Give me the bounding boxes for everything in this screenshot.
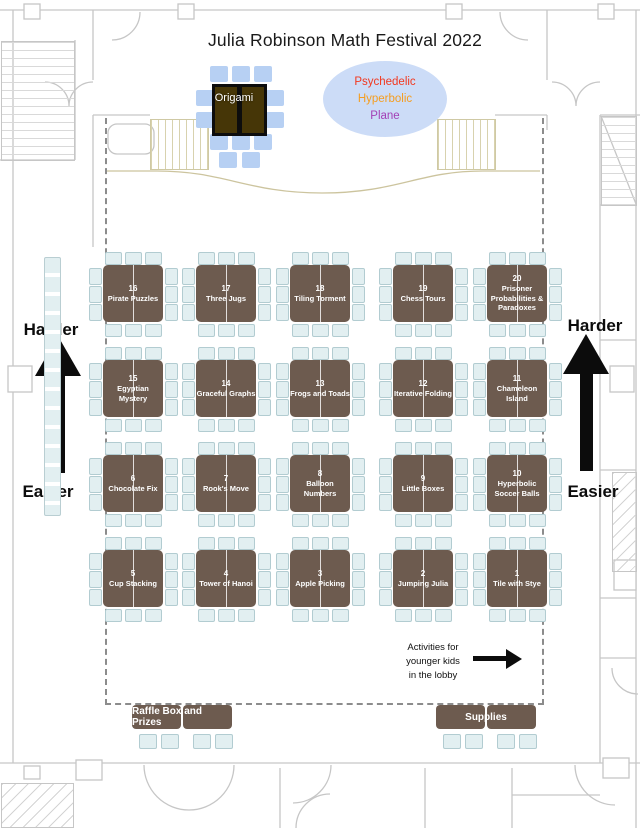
chair (395, 609, 412, 622)
activity-table-19: 19 Chess Tours (379, 252, 467, 336)
table-top: 16 Pirate Puzzles (103, 265, 163, 322)
chair (276, 571, 289, 588)
chair (258, 571, 271, 588)
table-top: 9 Little Boxes (393, 455, 453, 512)
chair (182, 381, 195, 398)
table-number: 2 (393, 569, 453, 579)
chair (276, 286, 289, 303)
table-top: 2 Jumping Julia (393, 550, 453, 607)
chair (332, 347, 349, 360)
chair (258, 286, 271, 303)
table-top: 6 Chocolate Fix (103, 455, 163, 512)
table-top: 18 Tiling Torment (290, 265, 350, 322)
chair (312, 514, 329, 527)
chair (312, 347, 329, 360)
chair (89, 286, 102, 303)
table-number: 19 (393, 284, 453, 294)
chair (379, 476, 392, 493)
chair (165, 304, 178, 321)
activity-table-14: 14 Graceful Graphs (182, 347, 270, 431)
chair (292, 442, 309, 455)
chair (232, 66, 250, 82)
chair (105, 419, 122, 432)
chair (332, 537, 349, 550)
chair (254, 66, 272, 82)
table-number: 10 (487, 469, 547, 479)
chair (145, 609, 162, 622)
activity-table-5: 5 Cup Stacking (89, 537, 177, 621)
chair (489, 514, 506, 527)
chair (292, 347, 309, 360)
chair (509, 609, 526, 622)
chair (489, 442, 506, 455)
activity-table-17: 17 Three Jugs (182, 252, 270, 336)
chair (529, 419, 546, 432)
chair (105, 252, 122, 265)
arrow-head (563, 334, 609, 374)
chair (125, 537, 142, 550)
chair (254, 134, 272, 150)
table-top: 7 Rook's Move (196, 455, 256, 512)
chair (352, 553, 365, 570)
chair (165, 399, 178, 416)
chair (258, 589, 271, 606)
table-top: 12 Iterative Folding (393, 360, 453, 417)
chair (352, 381, 365, 398)
chair (379, 268, 392, 285)
chair (292, 514, 309, 527)
chair (89, 381, 102, 398)
chair (145, 514, 162, 527)
chair (352, 458, 365, 475)
chair (218, 537, 235, 550)
chair (125, 252, 142, 265)
chair (276, 553, 289, 570)
chair (455, 381, 468, 398)
chair (509, 324, 526, 337)
chair (165, 458, 178, 475)
table-number: 3 (290, 569, 350, 579)
chair (238, 252, 255, 265)
table-top: 10 Hyperbolic Soccer Balls (487, 455, 547, 512)
chair (489, 347, 506, 360)
chair (292, 252, 309, 265)
chair (89, 571, 102, 588)
chair (455, 268, 468, 285)
chair (218, 442, 235, 455)
activity-table-10: 10 Hyperbolic Soccer Balls (473, 442, 561, 526)
table-number: 9 (393, 474, 453, 484)
arrow-shaft (473, 656, 506, 661)
table-activity-name: Pirate Puzzles (103, 294, 163, 303)
chair (332, 609, 349, 622)
chair (219, 152, 237, 168)
chair (165, 589, 178, 606)
chair (165, 476, 178, 493)
chair (218, 609, 235, 622)
chair (89, 268, 102, 285)
chair (489, 324, 506, 337)
chair (89, 553, 102, 570)
lobby-note-line: younger kids (397, 655, 469, 669)
chair (332, 252, 349, 265)
chair (529, 442, 546, 455)
chair (89, 304, 102, 321)
chair (549, 381, 562, 398)
chair (529, 514, 546, 527)
supplies-table-label: Supplies (436, 705, 536, 729)
chair (276, 476, 289, 493)
chair (165, 553, 178, 570)
chair (276, 381, 289, 398)
chair (549, 286, 562, 303)
chair (455, 304, 468, 321)
floor-plan: Julia Robinson Math Festival 2022 Origam… (0, 0, 640, 828)
chair (182, 268, 195, 285)
table-activity-name: Balloon Numbers (290, 479, 350, 498)
chair (529, 324, 546, 337)
chair (258, 476, 271, 493)
supplies-table: Supplies (436, 705, 536, 729)
chair (232, 134, 250, 150)
chair (182, 571, 195, 588)
chair (276, 494, 289, 511)
table-activity-name: Jumping Julia (393, 579, 453, 588)
chair (125, 442, 142, 455)
chair (105, 514, 122, 527)
activity-table-6: 6 Chocolate Fix (89, 442, 177, 526)
chair (258, 458, 271, 475)
table-activity-name: Tile with Stye (487, 579, 547, 588)
chair (258, 363, 271, 380)
chair (165, 363, 178, 380)
chair (182, 476, 195, 493)
chair (379, 494, 392, 511)
chair (509, 537, 526, 550)
table-top: 5 Cup Stacking (103, 550, 163, 607)
chair (198, 442, 215, 455)
chair (455, 494, 468, 511)
chair (276, 304, 289, 321)
chair (182, 363, 195, 380)
chair (161, 734, 179, 749)
chair (529, 347, 546, 360)
activity-table-18: 18 Tiling Torment (276, 252, 364, 336)
page-title: Julia Robinson Math Festival 2022 (105, 30, 585, 51)
table-activity-name: Rook's Move (196, 484, 256, 493)
table-top: 8 Balloon Numbers (290, 455, 350, 512)
lobby-note: Activities for younger kids in the lobby (397, 641, 469, 683)
chair (125, 324, 142, 337)
chair (549, 304, 562, 321)
chair (415, 252, 432, 265)
chair (89, 458, 102, 475)
chair (276, 458, 289, 475)
chair (549, 458, 562, 475)
chair (529, 537, 546, 550)
chair (276, 399, 289, 416)
chair (312, 442, 329, 455)
chair (509, 514, 526, 527)
table-activity-name: Chess Tours (393, 294, 453, 303)
chair (352, 286, 365, 303)
chair (473, 363, 486, 380)
chair (473, 476, 486, 493)
activity-table-2: 2 Jumping Julia (379, 537, 467, 621)
chair (455, 399, 468, 416)
chair (198, 514, 215, 527)
sign-line-2: Hyperbolic (358, 91, 412, 108)
chair (549, 553, 562, 570)
chair (238, 514, 255, 527)
chair (332, 419, 349, 432)
origami-label: Origami (201, 92, 267, 104)
activity-table-9: 9 Little Boxes (379, 442, 467, 526)
activity-table-13: 13 Frogs and Toads (276, 347, 364, 431)
chair (182, 286, 195, 303)
sign-line-1: Psychedelic (354, 74, 415, 91)
chair (292, 324, 309, 337)
chair (352, 589, 365, 606)
table-number: 14 (196, 379, 256, 389)
chair (238, 347, 255, 360)
chair (415, 419, 432, 432)
chair (105, 324, 122, 337)
chair (529, 609, 546, 622)
chair (89, 589, 102, 606)
chair (258, 381, 271, 398)
table-number: 11 (487, 374, 547, 384)
chair (105, 347, 122, 360)
chair (473, 571, 486, 588)
chair (182, 304, 195, 321)
chair (473, 286, 486, 303)
chair (352, 399, 365, 416)
chair (549, 571, 562, 588)
chair (276, 363, 289, 380)
chair (266, 112, 284, 128)
table-activity-name: Tower of Hanoi (196, 579, 256, 588)
table-number: 18 (290, 284, 350, 294)
chair (145, 347, 162, 360)
chair (218, 347, 235, 360)
chair (332, 514, 349, 527)
activity-table-11: 11 Chameleon Island (473, 347, 561, 431)
chair (312, 609, 329, 622)
chair (198, 347, 215, 360)
table-top: 19 Chess Tours (393, 265, 453, 322)
stairs-top-left (1, 41, 75, 161)
chair (198, 324, 215, 337)
chair (105, 537, 122, 550)
chair (258, 304, 271, 321)
chair (215, 734, 233, 749)
table-activity-name: Chameleon Island (487, 384, 547, 403)
chair (238, 442, 255, 455)
chair (182, 553, 195, 570)
chair (182, 494, 195, 511)
activity-table-20: 20 Prisoner Probabilities & Paradoxes (473, 252, 561, 336)
chair (238, 324, 255, 337)
chair (455, 363, 468, 380)
chair (218, 252, 235, 265)
chair (145, 442, 162, 455)
chair (415, 609, 432, 622)
chair (165, 494, 178, 511)
chair (465, 734, 483, 749)
chair (218, 419, 235, 432)
chair (139, 734, 157, 749)
activity-table-12: 12 Iterative Folding (379, 347, 467, 431)
chair (182, 399, 195, 416)
table-number: 13 (290, 379, 350, 389)
chair (312, 324, 329, 337)
chair (473, 458, 486, 475)
table-activity-name: Cup Stacking (103, 579, 163, 588)
chair (165, 381, 178, 398)
table-top: 4 Tower of Hanoi (196, 550, 256, 607)
chair (473, 553, 486, 570)
activity-table-1: 1 Tile with Stye (473, 537, 561, 621)
chair (519, 734, 537, 749)
table-activity-name: Frogs and Toads (290, 389, 350, 398)
activity-table-7: 7 Rook's Move (182, 442, 270, 526)
chair (549, 363, 562, 380)
chair (489, 419, 506, 432)
chair (509, 347, 526, 360)
chair (395, 514, 412, 527)
lobby-arrow (473, 649, 523, 669)
raffle-table: Raffle Box and Prizes (132, 705, 232, 729)
chair (352, 494, 365, 511)
chair (435, 252, 452, 265)
chair (415, 347, 432, 360)
chair (379, 553, 392, 570)
chair (395, 324, 412, 337)
chair (165, 571, 178, 588)
difficulty-arrow-right (563, 334, 609, 471)
chair (198, 609, 215, 622)
table-number: 1 (487, 569, 547, 579)
table-activity-name: Tiling Torment (290, 294, 350, 303)
stairs-top-right (601, 116, 637, 206)
table-number: 8 (290, 469, 350, 479)
chair (435, 347, 452, 360)
chair (509, 419, 526, 432)
chair (258, 494, 271, 511)
chair (379, 363, 392, 380)
chair (455, 589, 468, 606)
chair (218, 514, 235, 527)
chair (105, 442, 122, 455)
chair (242, 152, 260, 168)
table-top: 14 Graceful Graphs (196, 360, 256, 417)
chair (473, 589, 486, 606)
lobby-note-line: Activities for (397, 641, 469, 655)
chair (379, 399, 392, 416)
chair (379, 571, 392, 588)
activity-table-15: 15 Egyptian Mystery (89, 347, 177, 431)
chair (258, 268, 271, 285)
chair (435, 324, 452, 337)
table-top: 17 Three Jugs (196, 265, 256, 322)
chair (276, 268, 289, 285)
chair (435, 609, 452, 622)
table-top: 13 Frogs and Toads (290, 360, 350, 417)
activity-table-4: 4 Tower of Hanoi (182, 537, 270, 621)
chair (332, 324, 349, 337)
table-top: 15 Egyptian Mystery (103, 360, 163, 417)
chair (238, 609, 255, 622)
chair (455, 286, 468, 303)
table-number: 20 (487, 274, 547, 284)
table-number: 5 (103, 569, 163, 579)
lobby-note-line: in the lobby (397, 669, 469, 683)
table-top: 1 Tile with Stye (487, 550, 547, 607)
chair (89, 494, 102, 511)
chair (238, 419, 255, 432)
chair (332, 442, 349, 455)
chair (395, 419, 412, 432)
chair (125, 514, 142, 527)
activity-table-3: 3 Apple Picking (276, 537, 364, 621)
chair (379, 304, 392, 321)
chair (509, 252, 526, 265)
chair (455, 571, 468, 588)
table-activity-name: Iterative Folding (393, 389, 453, 398)
chair (529, 252, 546, 265)
chair (379, 589, 392, 606)
table-activity-name: Three Jugs (196, 294, 256, 303)
wall-chair-strip (44, 257, 61, 516)
chair (415, 324, 432, 337)
chair (352, 304, 365, 321)
chair (145, 324, 162, 337)
chair (352, 268, 365, 285)
chair (435, 514, 452, 527)
chair (312, 419, 329, 432)
chair (125, 419, 142, 432)
chair (182, 458, 195, 475)
chair (395, 252, 412, 265)
chair (473, 268, 486, 285)
chair (145, 252, 162, 265)
chair (258, 553, 271, 570)
chair (352, 363, 365, 380)
chair (415, 514, 432, 527)
table-activity-name: Prisoner Probabilities & Paradoxes (487, 284, 547, 312)
chair (105, 609, 122, 622)
chair (125, 347, 142, 360)
chair (352, 476, 365, 493)
chair (395, 347, 412, 360)
chair (379, 286, 392, 303)
chair (509, 442, 526, 455)
table-top: 20 Prisoner Probabilities & Paradoxes (487, 265, 547, 322)
table-number: 17 (196, 284, 256, 294)
table-number: 16 (103, 284, 163, 294)
table-activity-name: Egyptian Mystery (103, 384, 163, 403)
chair (473, 399, 486, 416)
chair (549, 589, 562, 606)
chair (165, 268, 178, 285)
activity-table-16: 16 Pirate Puzzles (89, 252, 177, 336)
chair (473, 381, 486, 398)
chair (379, 458, 392, 475)
chair (193, 734, 211, 749)
chair (352, 571, 365, 588)
chair (312, 252, 329, 265)
